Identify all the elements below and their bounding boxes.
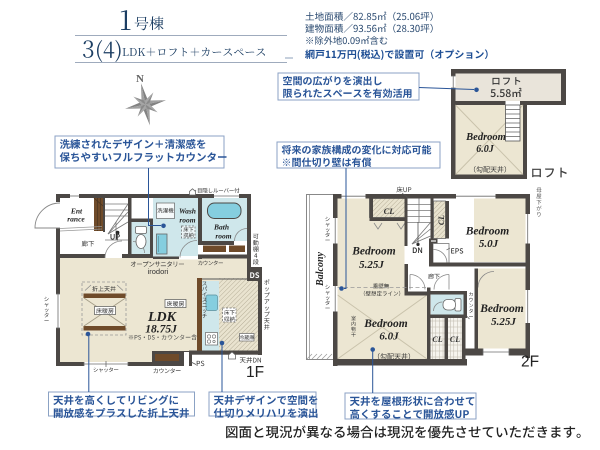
svg-text:CL: CL — [437, 215, 446, 225]
svg-text:N: N — [136, 73, 144, 85]
svg-text:Bedroom: Bedroom — [465, 226, 510, 238]
svg-text:Bedroom: Bedroom — [351, 246, 396, 258]
svg-text:1F: 1F — [246, 364, 264, 381]
svg-text:Balcony: Balcony — [315, 251, 326, 286]
svg-text:CL: CL — [384, 206, 395, 216]
svg-text:5.0J: 5.0J — [479, 238, 499, 250]
svg-text:room: room — [215, 232, 231, 241]
svg-text:5.25J: 5.25J — [359, 259, 384, 271]
svg-text:CL: CL — [432, 335, 442, 344]
svg-text:CL: CL — [450, 335, 460, 344]
svg-text:Bedroom: Bedroom — [479, 303, 524, 315]
svg-text:6.0J: 6.0J — [476, 144, 495, 155]
svg-text:rance: rance — [67, 215, 85, 224]
svg-text:Wash: Wash — [179, 207, 196, 216]
svg-text:room: room — [179, 216, 195, 225]
svg-text:18.75J: 18.75J — [145, 324, 178, 336]
svg-text:Bedroom: Bedroom — [363, 318, 408, 330]
svg-text:6.0J: 6.0J — [379, 331, 399, 343]
svg-text:Bedroom: Bedroom — [465, 132, 506, 143]
svg-text:2F: 2F — [521, 354, 539, 371]
svg-text:5.25J: 5.25J — [491, 316, 516, 328]
svg-text:irodori: irodori — [148, 267, 169, 276]
svg-text:Bath: Bath — [213, 223, 229, 232]
